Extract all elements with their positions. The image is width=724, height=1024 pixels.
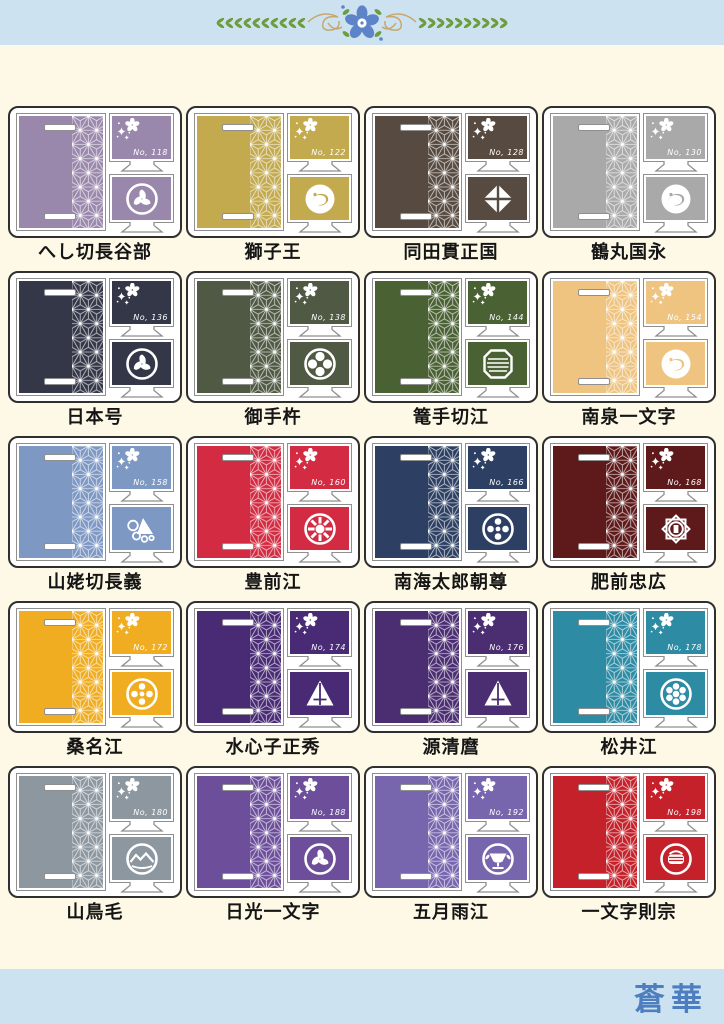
mini-panel-sakura: No, 154 bbox=[646, 281, 705, 324]
sail-triangle-icon bbox=[300, 674, 340, 714]
cup-circle-icon bbox=[478, 839, 518, 879]
sakura-petals-icon bbox=[293, 118, 319, 144]
binding-slot-bottom bbox=[578, 873, 610, 880]
product-name: 桑名江 bbox=[8, 733, 182, 762]
product-cell: No, 172 bbox=[8, 601, 182, 766]
sakura-petals-icon bbox=[471, 118, 497, 144]
binding-slot-bottom bbox=[44, 213, 76, 220]
cover-color-panel bbox=[375, 281, 459, 393]
cover-color-panel bbox=[19, 281, 103, 393]
cover-color-panel bbox=[375, 776, 459, 888]
cover-color-panel bbox=[375, 446, 459, 558]
binding-slot-bottom bbox=[222, 378, 254, 385]
product-cell: No, 136 bbox=[8, 271, 182, 436]
cover-stand bbox=[550, 113, 640, 231]
stand-base-tab bbox=[298, 656, 342, 667]
crane-disc-icon bbox=[656, 179, 696, 219]
mini-stand-crest bbox=[465, 339, 530, 398]
crest-box bbox=[122, 674, 162, 714]
binding-slot-bottom bbox=[400, 213, 432, 220]
product-name: 豊前江 bbox=[186, 568, 360, 597]
product-cell: No, 138 bbox=[186, 271, 360, 436]
asanoha-pattern bbox=[250, 776, 281, 888]
product-grid: No, 118 bbox=[8, 106, 716, 931]
crest-box bbox=[478, 179, 518, 219]
stand-base-tab bbox=[476, 491, 520, 502]
sakura-petals-icon bbox=[471, 778, 497, 804]
stand-base-tab bbox=[654, 491, 698, 502]
mountain-circle-icon bbox=[122, 839, 162, 879]
cover-stand bbox=[372, 113, 462, 231]
binding-slot-top bbox=[578, 289, 610, 296]
lined-octagon-icon bbox=[478, 344, 518, 384]
binding-slot-bottom bbox=[222, 708, 254, 715]
asanoha-pattern bbox=[428, 611, 459, 723]
sakura-petals-icon bbox=[471, 448, 497, 474]
product-card: No, 118 bbox=[8, 106, 182, 238]
product-card: No, 174 bbox=[186, 601, 360, 733]
stand-base-tab bbox=[654, 161, 698, 172]
mini-stand-crest bbox=[109, 504, 174, 563]
product-name: へし切長谷部 bbox=[8, 238, 182, 267]
mini-stand-crest bbox=[465, 174, 530, 233]
binding-slot-bottom bbox=[400, 873, 432, 880]
stand-base-tab bbox=[120, 222, 164, 233]
stand-base-tab bbox=[120, 326, 164, 337]
asanoha-pattern bbox=[250, 446, 281, 558]
product-card: No, 128 bbox=[364, 106, 538, 238]
mini-panel-sakura: No, 188 bbox=[290, 776, 349, 819]
cover-color-panel bbox=[553, 116, 637, 228]
mini-panel-crest bbox=[646, 672, 705, 715]
product-card: No, 198 bbox=[542, 766, 716, 898]
binding-slot-top bbox=[578, 124, 610, 131]
dragon-tomoe-circle-icon bbox=[122, 344, 162, 384]
mini-panel-crest bbox=[290, 342, 349, 385]
binding-slot-top bbox=[578, 619, 610, 626]
binding-slot-top bbox=[44, 289, 76, 296]
product-name: 日本号 bbox=[8, 403, 182, 432]
asanoha-pattern bbox=[72, 611, 103, 723]
binding-slot-bottom bbox=[222, 213, 254, 220]
mini-panel-crest bbox=[112, 507, 171, 550]
product-cell: No, 198 bbox=[542, 766, 716, 931]
binding-slot-bottom bbox=[400, 543, 432, 550]
header-band bbox=[0, 0, 724, 45]
mini-stand-crest bbox=[109, 174, 174, 233]
basket-circle-icon bbox=[656, 839, 696, 879]
product-name: 同田貫正国 bbox=[364, 238, 538, 267]
mini-stand-crest bbox=[643, 339, 708, 398]
cross-petal-circle-icon bbox=[300, 344, 340, 384]
asanoha-pattern bbox=[72, 281, 103, 393]
product-cell: No, 176 bbox=[364, 601, 538, 766]
product-number: No, 174 bbox=[311, 643, 346, 652]
asanoha-pattern bbox=[606, 776, 637, 888]
product-name: 日光一文字 bbox=[186, 898, 360, 927]
crest-box bbox=[300, 839, 340, 879]
cover-stand bbox=[194, 773, 284, 891]
grape-sail-cluster-icon bbox=[122, 509, 162, 549]
cover-color-panel bbox=[553, 281, 637, 393]
product-number: No, 138 bbox=[311, 313, 346, 322]
cover-color-panel bbox=[197, 116, 281, 228]
mini-panel-crest bbox=[646, 837, 705, 880]
binding-slot-top bbox=[400, 619, 432, 626]
binding-slot-bottom bbox=[400, 378, 432, 385]
mini-stand-crest bbox=[287, 339, 352, 398]
binding-slot-bottom bbox=[44, 378, 76, 385]
mini-panel-sakura: No, 122 bbox=[290, 116, 349, 159]
sakura-petals-icon bbox=[293, 283, 319, 309]
stand-base-tab bbox=[298, 882, 342, 893]
mini-stand-sakura: No, 180 bbox=[109, 773, 174, 832]
binding-slot-top bbox=[44, 619, 76, 626]
sakura-petals-icon bbox=[649, 778, 675, 804]
binding-slot-top bbox=[400, 784, 432, 791]
cover-color-panel bbox=[19, 446, 103, 558]
product-number: No, 128 bbox=[489, 148, 524, 157]
mini-panel-sakura: No, 118 bbox=[112, 116, 171, 159]
cover-color-panel bbox=[375, 116, 459, 228]
binding-slot-top bbox=[578, 784, 610, 791]
binding-slot-bottom bbox=[578, 708, 610, 715]
mini-stand-sakura: No, 192 bbox=[465, 773, 530, 832]
crest-box bbox=[478, 839, 518, 879]
product-name: 南海太郎朝尊 bbox=[364, 568, 538, 597]
mini-panel-sakura: No, 192 bbox=[468, 776, 527, 819]
binding-slot-top bbox=[44, 124, 76, 131]
stand-base-tab bbox=[298, 717, 342, 728]
product-cell: No, 130 bbox=[542, 106, 716, 271]
mini-stand-crest bbox=[465, 669, 530, 728]
mini-stand-sakura: No, 122 bbox=[287, 113, 352, 172]
mini-stand-sakura: No, 166 bbox=[465, 443, 530, 502]
product-number: No, 118 bbox=[133, 148, 168, 157]
mini-stand-sakura: No, 172 bbox=[109, 608, 174, 667]
product-name: 水心子正秀 bbox=[186, 733, 360, 762]
product-card: No, 154 bbox=[542, 271, 716, 403]
asanoha-pattern bbox=[606, 116, 637, 228]
product-cell: No, 158 bbox=[8, 436, 182, 601]
product-cell: No, 192 bbox=[364, 766, 538, 931]
crest-box bbox=[300, 179, 340, 219]
cover-stand bbox=[16, 278, 106, 396]
stand-base-tab bbox=[476, 387, 520, 398]
mini-stand-crest bbox=[109, 669, 174, 728]
product-cell: No, 166 bbox=[364, 436, 538, 601]
cover-color-panel bbox=[197, 611, 281, 723]
asanoha-pattern bbox=[606, 611, 637, 723]
asanoha-pattern bbox=[428, 116, 459, 228]
binding-slot-top bbox=[44, 784, 76, 791]
mini-stand-crest bbox=[643, 504, 708, 563]
cover-stand bbox=[16, 443, 106, 561]
stand-base-tab bbox=[654, 717, 698, 728]
cover-color-panel bbox=[197, 281, 281, 393]
mini-stand-crest bbox=[643, 174, 708, 233]
product-name: 山姥切長義 bbox=[8, 568, 182, 597]
laurel-sakura-divider-icon bbox=[162, 1, 562, 45]
stand-base-tab bbox=[476, 717, 520, 728]
binding-slot-top bbox=[222, 124, 254, 131]
binding-slot-top bbox=[44, 454, 76, 461]
cover-color-panel bbox=[197, 776, 281, 888]
mini-stand-sakura: No, 144 bbox=[465, 278, 530, 337]
product-card: No, 180 bbox=[8, 766, 182, 898]
binding-slot-bottom bbox=[44, 873, 76, 880]
cover-stand bbox=[16, 773, 106, 891]
product-number: No, 192 bbox=[489, 808, 524, 817]
cover-color-panel bbox=[19, 116, 103, 228]
stand-base-tab bbox=[476, 821, 520, 832]
mini-stand-sakura: No, 118 bbox=[109, 113, 174, 172]
stand-base-tab bbox=[476, 882, 520, 893]
mini-panel-crest bbox=[468, 672, 527, 715]
stand-base-tab bbox=[298, 491, 342, 502]
asanoha-pattern bbox=[250, 281, 281, 393]
product-card: No, 168 bbox=[542, 436, 716, 568]
asanoha-pattern bbox=[428, 281, 459, 393]
sakura-petals-icon bbox=[115, 613, 141, 639]
crest-box bbox=[122, 509, 162, 549]
mini-stand-crest bbox=[643, 669, 708, 728]
mini-panel-sakura: No, 136 bbox=[112, 281, 171, 324]
moon-swirl-disc-icon bbox=[300, 179, 340, 219]
asanoha-pattern bbox=[72, 116, 103, 228]
mini-stand-sakura: No, 198 bbox=[643, 773, 708, 832]
mini-stand-crest bbox=[643, 834, 708, 893]
product-number: No, 198 bbox=[667, 808, 702, 817]
product-cell: No, 180 bbox=[8, 766, 182, 931]
mini-panel-crest bbox=[112, 177, 171, 220]
mini-panel-sakura: No, 198 bbox=[646, 776, 705, 819]
binding-slot-top bbox=[400, 124, 432, 131]
cover-color-panel bbox=[553, 446, 637, 558]
mini-panel-crest bbox=[646, 507, 705, 550]
product-cell: No, 168 bbox=[542, 436, 716, 601]
mini-panel-crest bbox=[646, 342, 705, 385]
mini-stand-crest bbox=[287, 174, 352, 233]
product-name: 一文字則宗 bbox=[542, 898, 716, 927]
stand-base-tab bbox=[120, 821, 164, 832]
sakura-petals-icon bbox=[471, 283, 497, 309]
binding-slot-bottom bbox=[578, 543, 610, 550]
cover-stand bbox=[372, 773, 462, 891]
crest-box bbox=[656, 509, 696, 549]
crest-box bbox=[300, 509, 340, 549]
cover-stand bbox=[372, 608, 462, 726]
binding-slot-top bbox=[578, 454, 610, 461]
stand-base-tab bbox=[654, 552, 698, 563]
mini-panel-crest bbox=[112, 342, 171, 385]
mini-stand-crest bbox=[109, 339, 174, 398]
product-number: No, 144 bbox=[489, 313, 524, 322]
asanoha-pattern bbox=[72, 776, 103, 888]
mini-stand-crest bbox=[287, 669, 352, 728]
asanoha-pattern bbox=[250, 611, 281, 723]
crest-box bbox=[656, 179, 696, 219]
stand-base-tab bbox=[120, 387, 164, 398]
sakura-petals-icon bbox=[115, 283, 141, 309]
product-name: 源清麿 bbox=[364, 733, 538, 762]
product-name: 松井江 bbox=[542, 733, 716, 762]
product-cell: No, 118 bbox=[8, 106, 182, 271]
mini-panel-crest bbox=[290, 672, 349, 715]
binding-slot-bottom bbox=[578, 378, 610, 385]
product-card: No, 176 bbox=[364, 601, 538, 733]
mini-panel-sakura: No, 166 bbox=[468, 446, 527, 489]
mini-panel-crest bbox=[290, 507, 349, 550]
crest-box bbox=[478, 344, 518, 384]
cover-stand bbox=[550, 773, 640, 891]
product-name: 御手杵 bbox=[186, 403, 360, 432]
mini-panel-sakura: No, 174 bbox=[290, 611, 349, 654]
product-name: 山鳥毛 bbox=[8, 898, 182, 927]
product-card: No, 178 bbox=[542, 601, 716, 733]
sakura-petals-icon bbox=[293, 448, 319, 474]
mini-stand-crest bbox=[287, 504, 352, 563]
crest-box bbox=[656, 674, 696, 714]
cover-stand bbox=[16, 608, 106, 726]
product-cell: No, 122 bbox=[186, 106, 360, 271]
stand-base-tab bbox=[654, 656, 698, 667]
stand-base-tab bbox=[654, 326, 698, 337]
mini-stand-sakura: No, 154 bbox=[643, 278, 708, 337]
stand-base-tab bbox=[654, 387, 698, 398]
mini-panel-sakura: No, 144 bbox=[468, 281, 527, 324]
stand-base-tab bbox=[476, 326, 520, 337]
mini-panel-sakura: No, 172 bbox=[112, 611, 171, 654]
product-number: No, 130 bbox=[667, 148, 702, 157]
product-number: No, 188 bbox=[311, 808, 346, 817]
stand-base-tab bbox=[120, 717, 164, 728]
mini-stand-sakura: No, 158 bbox=[109, 443, 174, 502]
spoked-wheel-circle-icon bbox=[300, 509, 340, 549]
product-card: No, 138 bbox=[186, 271, 360, 403]
cover-stand bbox=[194, 113, 284, 231]
stand-base-tab bbox=[654, 222, 698, 233]
stand-base-tab bbox=[298, 821, 342, 832]
mini-panel-crest bbox=[468, 507, 527, 550]
cover-stand bbox=[194, 608, 284, 726]
mini-panel-sakura: No, 158 bbox=[112, 446, 171, 489]
binding-slot-top bbox=[222, 289, 254, 296]
binding-slot-bottom bbox=[578, 213, 610, 220]
crest-box bbox=[122, 344, 162, 384]
stand-base-tab bbox=[476, 552, 520, 563]
cover-color-panel bbox=[19, 611, 103, 723]
product-card: No, 160 bbox=[186, 436, 360, 568]
cover-stand bbox=[372, 278, 462, 396]
stand-base-tab bbox=[120, 656, 164, 667]
mini-panel-sakura: No, 168 bbox=[646, 446, 705, 489]
crest-box bbox=[122, 839, 162, 879]
product-number: No, 176 bbox=[489, 643, 524, 652]
mini-panel-crest bbox=[112, 837, 171, 880]
product-card: No, 192 bbox=[364, 766, 538, 898]
cover-stand bbox=[194, 278, 284, 396]
crest-box bbox=[122, 179, 162, 219]
cover-stand bbox=[550, 443, 640, 561]
product-name: 鶴丸国永 bbox=[542, 238, 716, 267]
sakura-petals-icon bbox=[115, 118, 141, 144]
sakura-petals-icon bbox=[649, 448, 675, 474]
mini-panel-sakura: No, 128 bbox=[468, 116, 527, 159]
mini-stand-sakura: No, 168 bbox=[643, 443, 708, 502]
binding-slot-top bbox=[222, 619, 254, 626]
mini-panel-crest bbox=[468, 837, 527, 880]
mini-panel-sakura: No, 138 bbox=[290, 281, 349, 324]
mini-panel-sakura: No, 160 bbox=[290, 446, 349, 489]
product-card: No, 172 bbox=[8, 601, 182, 733]
sail-triangle-icon bbox=[478, 674, 518, 714]
crest-box bbox=[478, 509, 518, 549]
mini-stand-sakura: No, 174 bbox=[287, 608, 352, 667]
mini-panel-sakura: No, 178 bbox=[646, 611, 705, 654]
stand-base-tab bbox=[476, 222, 520, 233]
mini-stand-sakura: No, 138 bbox=[287, 278, 352, 337]
product-name: 獅子王 bbox=[186, 238, 360, 267]
mini-panel-crest bbox=[468, 342, 527, 385]
product-card: No, 158 bbox=[8, 436, 182, 568]
binding-slot-bottom bbox=[44, 543, 76, 550]
binding-slot-top bbox=[222, 784, 254, 791]
mini-stand-sakura: No, 160 bbox=[287, 443, 352, 502]
mini-stand-crest bbox=[109, 834, 174, 893]
four-dot-circle-icon bbox=[478, 509, 518, 549]
cover-color-panel bbox=[375, 611, 459, 723]
mini-stand-sakura: No, 130 bbox=[643, 113, 708, 172]
split-diamond-icon bbox=[478, 179, 518, 219]
product-name: 南泉一文字 bbox=[542, 403, 716, 432]
product-card: No, 122 bbox=[186, 106, 360, 238]
product-number: No, 160 bbox=[311, 478, 346, 487]
product-cell: No, 188 bbox=[186, 766, 360, 931]
product-number: No, 154 bbox=[667, 313, 702, 322]
crest-box bbox=[300, 344, 340, 384]
binding-slot-bottom bbox=[222, 543, 254, 550]
product-name: 篭手切江 bbox=[364, 403, 538, 432]
mini-stand-sakura: No, 128 bbox=[465, 113, 530, 172]
tomoe-circle-icon bbox=[122, 179, 162, 219]
mini-stand-sakura: No, 176 bbox=[465, 608, 530, 667]
product-number: No, 178 bbox=[667, 643, 702, 652]
stand-base-tab bbox=[476, 161, 520, 172]
asanoha-pattern bbox=[428, 446, 459, 558]
eight-point-star-icon bbox=[656, 509, 696, 549]
sakura-petals-icon bbox=[115, 778, 141, 804]
asanoha-pattern bbox=[428, 776, 459, 888]
asanoha-pattern bbox=[250, 116, 281, 228]
mini-stand-sakura: No, 188 bbox=[287, 773, 352, 832]
mini-stand-crest bbox=[287, 834, 352, 893]
stand-base-tab bbox=[120, 491, 164, 502]
mini-panel-sakura: No, 176 bbox=[468, 611, 527, 654]
mini-panel-crest bbox=[290, 837, 349, 880]
crest-box bbox=[656, 839, 696, 879]
product-cell: No, 128 bbox=[364, 106, 538, 271]
sakura-petals-icon bbox=[471, 613, 497, 639]
product-number: No, 180 bbox=[133, 808, 168, 817]
product-number: No, 136 bbox=[133, 313, 168, 322]
binding-slot-top bbox=[222, 454, 254, 461]
cover-stand bbox=[550, 278, 640, 396]
product-cell: No, 160 bbox=[186, 436, 360, 601]
sakura-petals-icon bbox=[649, 118, 675, 144]
product-cell: No, 174 bbox=[186, 601, 360, 766]
product-name: 五月雨江 bbox=[364, 898, 538, 927]
